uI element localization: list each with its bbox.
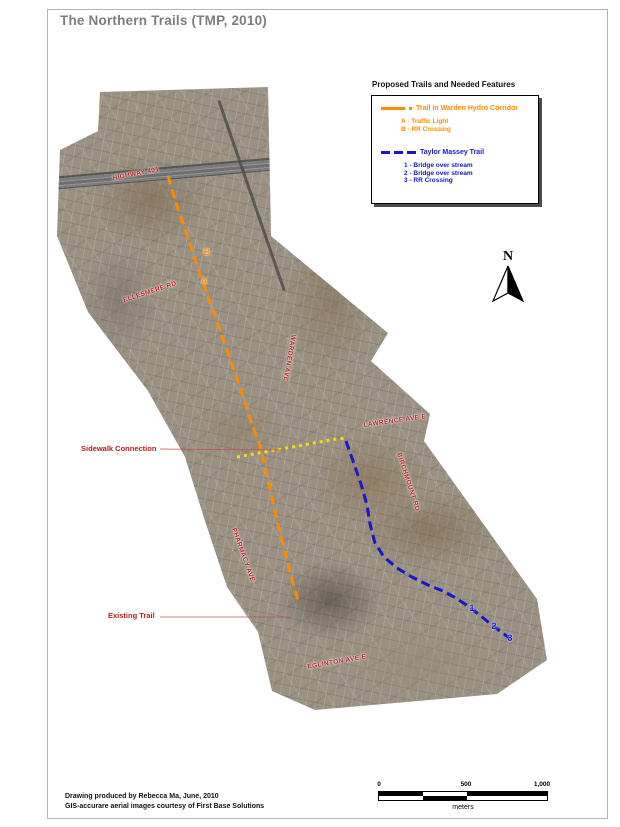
page-title: The Northern Trails (TMP, 2010) <box>60 13 267 28</box>
trail-marker-A: A <box>201 276 208 286</box>
trail-marker-2: 2 <box>491 621 496 631</box>
legend-item-bridge-1: 1 - Bridge over stream <box>404 162 538 170</box>
credit-line-1: Drawing produced by Rebecca Ma, June, 20… <box>65 792 264 802</box>
credit-line-2: GIS-accurare aerial images courtesy of F… <box>65 802 264 812</box>
blue-trail-dash-icon <box>381 151 390 154</box>
legend-items-warden: A - Traffic Light B - RR Crossing <box>401 118 538 134</box>
scale-bar-labels: 0 500 1,000 <box>378 781 548 789</box>
legend-item-bridge-2: 2 - Bridge over stream <box>404 170 538 178</box>
orange-trail-dot-icon <box>409 107 412 110</box>
scale-label-500: 500 <box>461 781 472 788</box>
blue-trail-dash-icon <box>394 151 403 154</box>
legend-entry-warden-trail: Trail in Warden Hydro Corridor <box>381 105 538 112</box>
scale-bar: 0 500 1,000 meters <box>378 781 548 811</box>
legend-title: Proposed Trails and Needed Features <box>372 80 515 89</box>
legend-box: Trail in Warden Hydro Corridor A - Traff… <box>371 95 539 204</box>
map-credits: Drawing produced by Rebecca Ma, June, 20… <box>65 792 264 811</box>
legend-label-warden-trail: Trail in Warden Hydro Corridor <box>416 105 518 112</box>
trail-marker-3: 3 <box>507 633 512 643</box>
scale-bar-unit: meters <box>378 804 548 811</box>
scale-bar-graphic <box>378 791 548 801</box>
scale-label-0: 0 <box>377 781 381 788</box>
legend-item-rr-crossing-orange: B - RR Crossing <box>401 126 538 134</box>
map-annotation: Sidewalk Connection <box>81 444 156 453</box>
legend-item-traffic-light: A - Traffic Light <box>401 118 538 126</box>
blue-trail-dash-icon <box>407 151 416 154</box>
scale-label-1000: 1,000 <box>534 781 550 788</box>
map-annotation: Existing Trail <box>108 611 155 620</box>
legend-entry-taylor-massey: Taylor Massey Trail <box>381 149 538 156</box>
trail-marker-1: 1 <box>469 603 474 613</box>
north-arrow: N <box>486 250 530 306</box>
orange-trail-line-icon <box>381 107 405 110</box>
trail-marker-B: B <box>204 247 211 257</box>
legend-item-rr-crossing-blue: 3 - RR Crossing <box>404 177 538 185</box>
north-label: N <box>486 250 530 264</box>
north-arrow-icon <box>486 264 530 304</box>
legend-items-taylor-massey: 1 - Bridge over stream 2 - Bridge over s… <box>404 162 538 185</box>
legend-label-taylor-massey: Taylor Massey Trail <box>420 149 484 156</box>
